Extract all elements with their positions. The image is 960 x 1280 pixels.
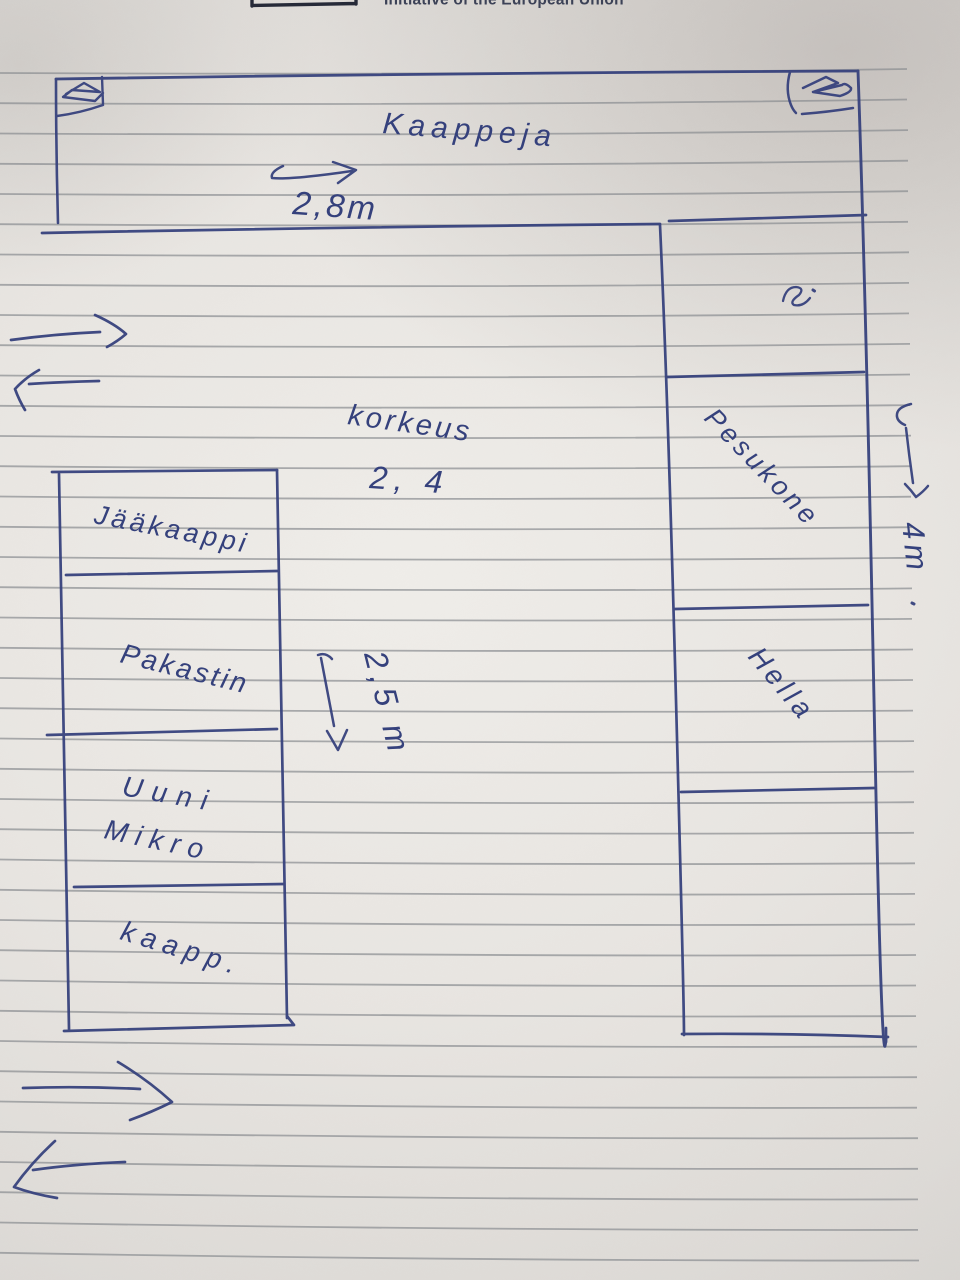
svg-text:Initiative of the European Uni: Initiative of the European Union	[384, 0, 624, 9]
svg-text:4m: 4m	[895, 520, 935, 576]
svg-text:2,8m: 2,8m	[291, 184, 380, 227]
svg-text:2, 4: 2, 4	[368, 459, 451, 501]
